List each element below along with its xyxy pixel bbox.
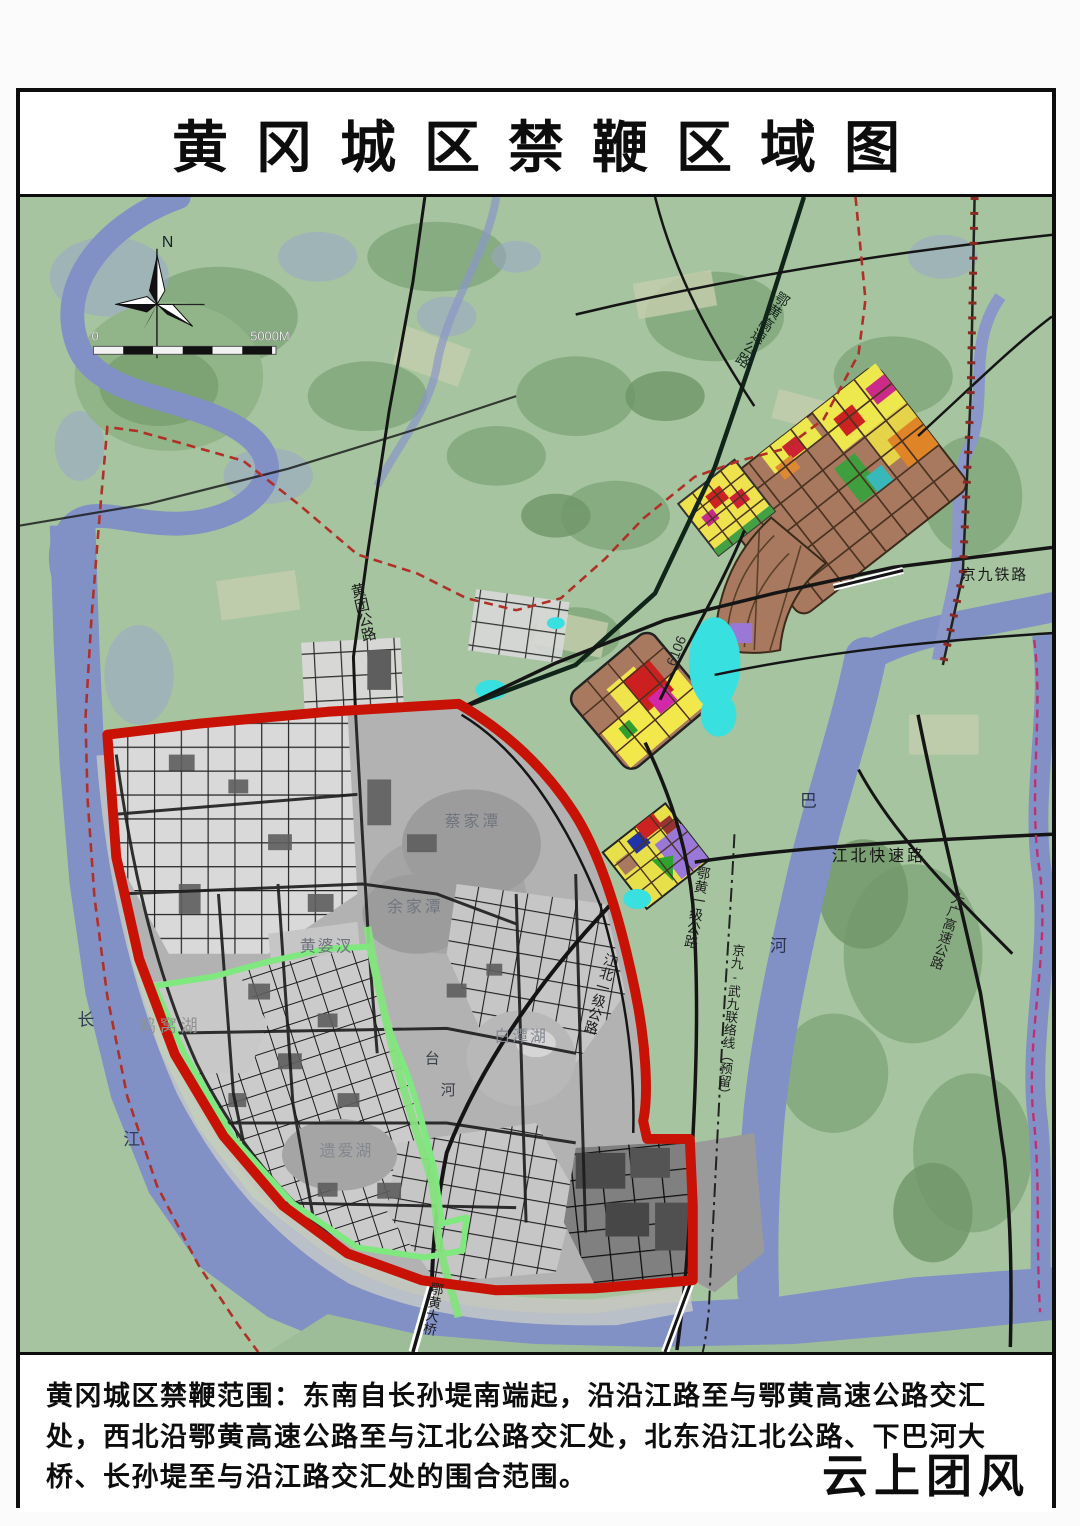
map-label-ba-river-ba: 巴	[800, 791, 817, 810]
map-label-baitanhu-lake: 白潭湖	[494, 1027, 548, 1045]
map-label-jingjiu-railway: 京九铁路	[961, 566, 1028, 583]
map-label-changjiang-chang: 长	[78, 1010, 95, 1029]
map-svg: N 0 5000M 黄团公路鄂黄高速公路京九铁路6106江北快速路巴河鄂黄一级公…	[20, 197, 1052, 1352]
title-band: 黄冈城区禁鞭区域图	[20, 92, 1052, 197]
map-label-jiwohu-lake: 鸡窝湖	[139, 1016, 201, 1035]
dark-parcel-n1	[367, 650, 391, 690]
map-label-huangpocha-lake: 黄婆汊	[300, 938, 354, 956]
map-label-yujiatan-lake: 余家潭	[387, 897, 444, 916]
map-label-jiangbei-expressway: 江北快速路	[832, 847, 926, 865]
page-title: 黄冈城区禁鞭区域图	[144, 103, 928, 184]
map-label-changjiang-jiang: 江	[123, 1130, 140, 1149]
map-area: N 0 5000M 黄团公路鄂黄高速公路京九铁路6106江北快速路巴河鄂黄一级公…	[20, 197, 1052, 1355]
scale-end: 5000M	[250, 328, 289, 343]
compass-n-label: N	[162, 234, 173, 251]
map-label-tai-river-tai: 台	[425, 1050, 440, 1067]
scale-start: 0	[91, 328, 98, 343]
map-sheet: 黄冈城区禁鞭区域图	[16, 88, 1056, 1508]
footer-band: 黄冈城区禁鞭范围：东南自长孙堤南端起，沿沿江路至与鄂黄高速公路交汇处，西北沿鄂黄…	[20, 1355, 1052, 1512]
watermark: 云上团风	[822, 1440, 1030, 1506]
map-label-ba-river-he: 河	[770, 937, 787, 956]
map-label-tai-river-he: 河	[441, 1082, 456, 1099]
map-label-yiaihu-lake: 遗爱湖	[320, 1142, 374, 1160]
map-label-caijiatan-lake: 蔡家潭	[445, 812, 502, 830]
